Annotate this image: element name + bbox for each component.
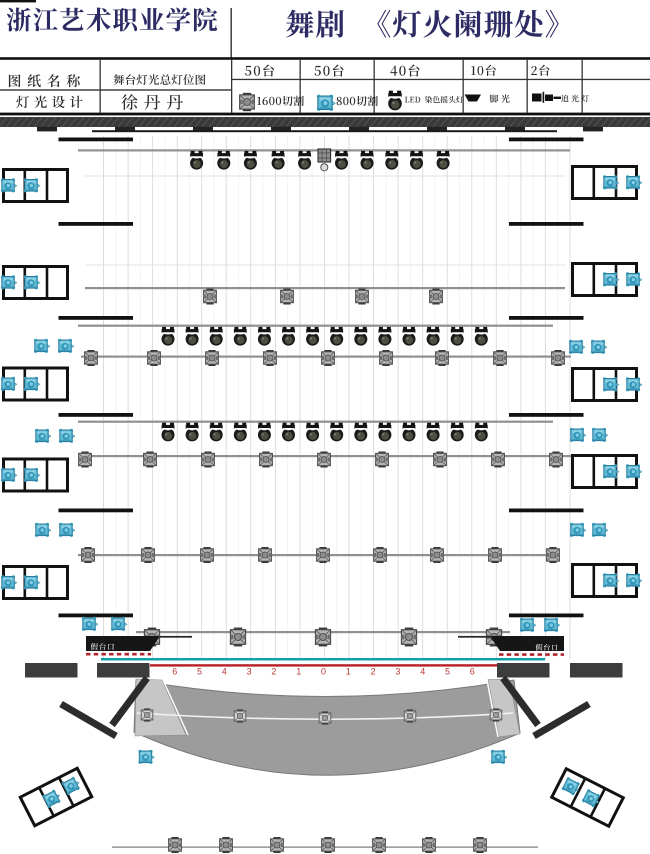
svg-text:5: 5 [197,667,202,677]
svg-text:1: 1 [296,667,301,677]
svg-text:3: 3 [395,667,400,677]
svg-text:6: 6 [172,667,177,677]
svg-text:2: 2 [371,667,376,677]
svg-text:3: 3 [247,667,252,677]
svg-text:2: 2 [271,667,276,677]
svg-text:1: 1 [346,667,351,677]
svg-text:6: 6 [470,667,475,677]
svg-text:0: 0 [321,667,326,677]
svg-text:5: 5 [445,667,450,677]
svg-text:4: 4 [222,667,227,677]
svg-text:4: 4 [420,667,425,677]
